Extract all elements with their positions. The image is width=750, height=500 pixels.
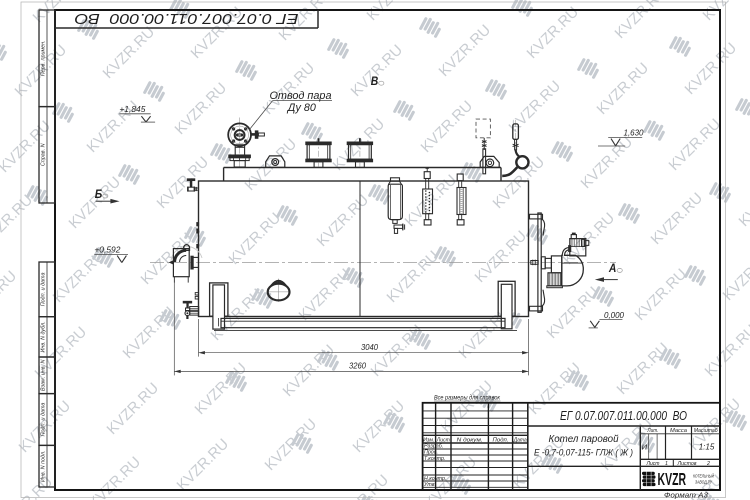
svg-text:Е -0,7-0,07-115- ГЛЖ ( Ж ): Е -0,7-0,07-115- ГЛЖ ( Ж ) <box>534 448 633 458</box>
svg-text:Лист: Лист <box>646 461 661 467</box>
svg-text:Лит.: Лит. <box>647 428 659 434</box>
svg-text:ЗАВОД.РУ: ЗАВОД.РУ <box>695 479 713 484</box>
svg-text:Лист: Лист <box>436 437 451 443</box>
svg-text:Дата: Дата <box>513 437 527 443</box>
svg-text:Листов: Листов <box>677 461 697 467</box>
svg-text:Справ. N: Справ. N <box>40 143 46 166</box>
svg-text:3260: 3260 <box>349 361 366 371</box>
svg-text:В: В <box>371 76 379 88</box>
svg-text:N докум.: N докум. <box>457 437 483 443</box>
svg-text:Подп. и дата: Подп. и дата <box>40 273 46 307</box>
svg-text:+0,592: +0,592 <box>94 245 120 255</box>
svg-text:Масштаб: Масштаб <box>694 428 719 434</box>
svg-text:1: 1 <box>665 461 668 467</box>
svg-text:+1,845: +1,845 <box>119 104 145 114</box>
svg-text:Б: Б <box>95 189 103 201</box>
svg-text:1:15: 1:15 <box>699 443 715 452</box>
svg-text:Т.контр.: Т.контр. <box>424 456 445 462</box>
svg-text:Взам. инв. N: Взам. инв. N <box>40 359 46 391</box>
svg-text:Ду 80: Ду 80 <box>287 102 316 114</box>
svg-text:Котел паровой: Котел паровой <box>549 434 620 445</box>
svg-text:Отвод пара: Отвод пара <box>270 90 332 102</box>
svg-text:3040: 3040 <box>361 342 378 352</box>
svg-text:2: 2 <box>706 461 710 467</box>
svg-text:Масса: Масса <box>670 428 687 434</box>
svg-text:Инв. N дубл.: Инв. N дубл. <box>40 321 46 352</box>
svg-text:Перв. примен.: Перв. примен. <box>40 40 46 76</box>
svg-text:KVZR: KVZR <box>658 469 687 489</box>
svg-text:Подп. и дата: Подп. и дата <box>40 403 46 437</box>
svg-text:ЕГ 0.07.007.011.00.000 ВО: ЕГ 0.07.007.011.00.000 ВО <box>560 409 687 423</box>
svg-text:Инв. N подл.: Инв. N подл. <box>40 450 46 482</box>
svg-text:Все размеры для справок: Все размеры для справок <box>434 394 501 401</box>
svg-text:ЕГ 0.07.007.011.00.000 ВО: ЕГ 0.07.007.011.00.000 ВО <box>75 10 299 26</box>
svg-text:Формат А3: Формат А3 <box>664 491 708 500</box>
svg-text:И: И <box>642 443 648 452</box>
svg-text:А: А <box>608 263 616 275</box>
svg-text:Изм.: Изм. <box>423 437 434 443</box>
svg-text:1,630: 1,630 <box>624 128 644 138</box>
svg-text:Утв.: Утв. <box>424 482 436 488</box>
svg-text:0,000: 0,000 <box>604 310 624 320</box>
svg-text:КОТЕЛЬНЫЙ: КОТЕЛЬНЫЙ <box>693 474 715 479</box>
svg-text:Подп.: Подп. <box>493 437 509 443</box>
svg-text:Пров.: Пров. <box>424 450 438 456</box>
